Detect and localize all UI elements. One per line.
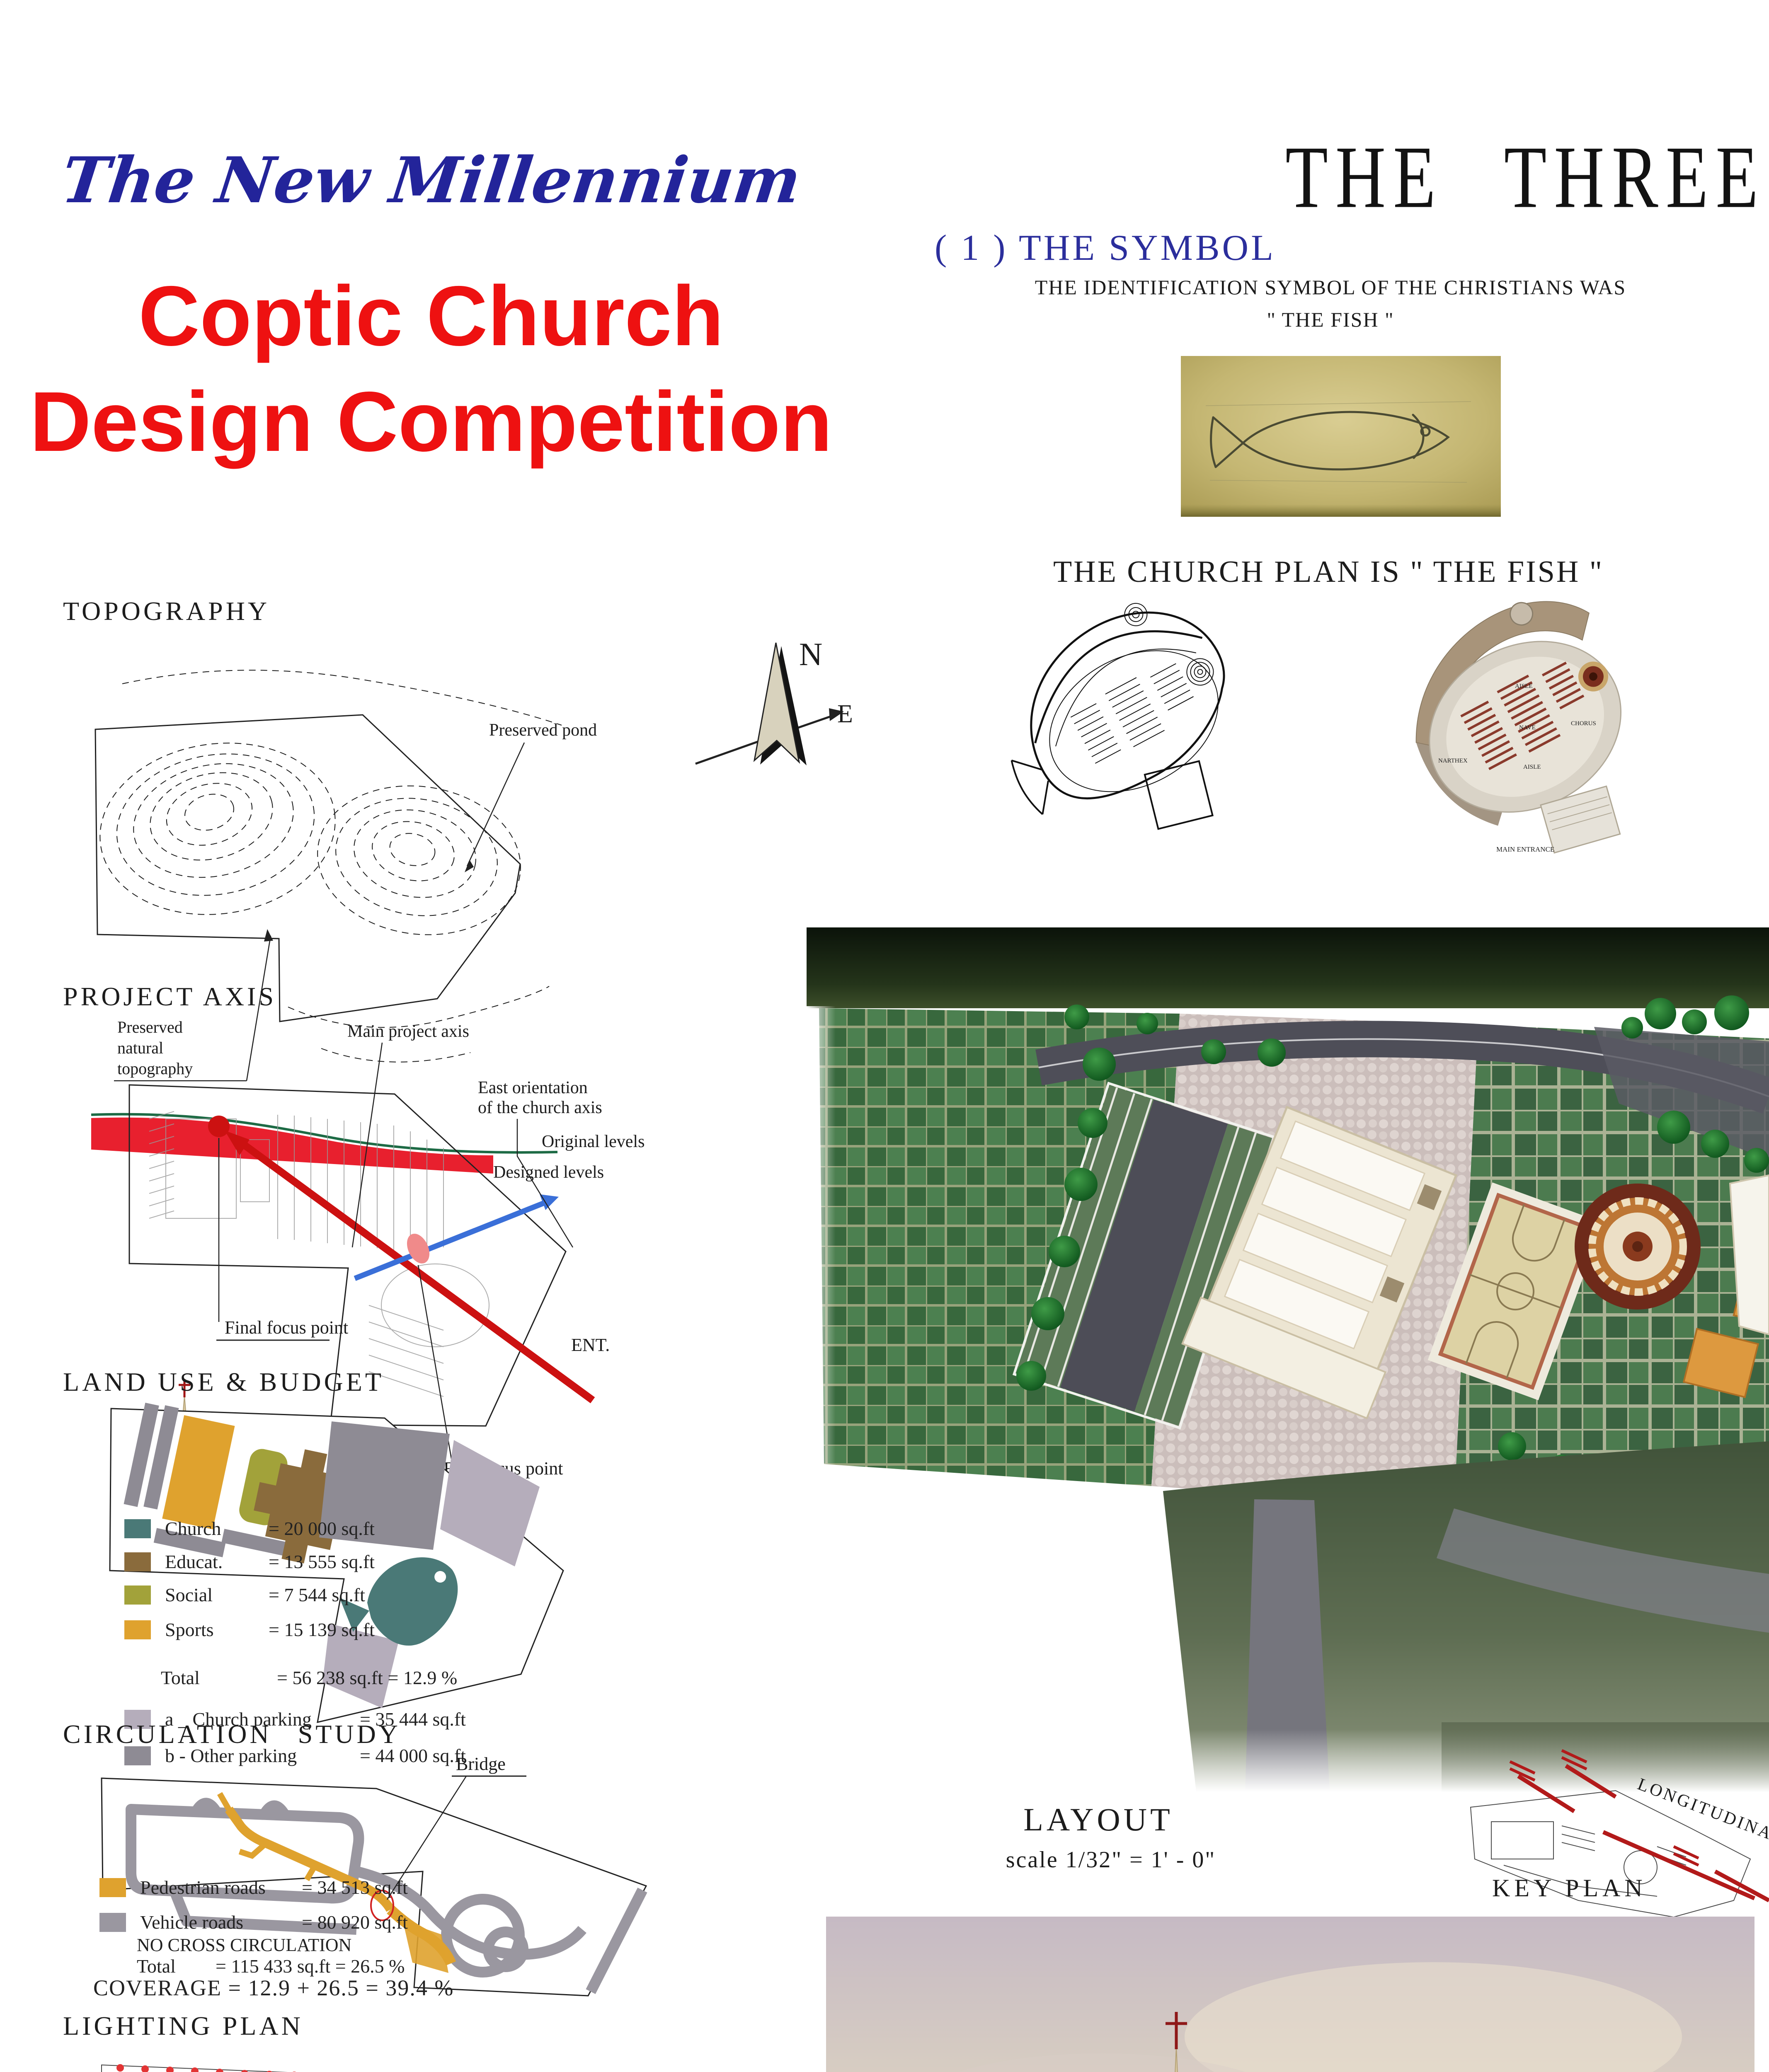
north-grass-band <box>807 927 1769 1008</box>
fish-plan-rendered: NARTHEX AISLE NAVE AISLE CHORUS MAIN ENT… <box>1395 578 1654 868</box>
plan-label-narthex: NARTHEX <box>1438 758 1468 764</box>
plan-label-aisle-left: AISLE <box>1515 683 1533 690</box>
mosaic-plaza <box>1575 1184 1701 1310</box>
topography-heading: TOPOGRAPHY <box>63 596 270 627</box>
legend-row-pedestrian: Pedestrian roads = 34 513 sq.ft <box>99 1876 408 1898</box>
layout-scale: scale 1/32" = 1' - 0" <box>953 1847 1268 1873</box>
symbol-line1: THE IDENTIFICATION SYMBOL OF THE CHRISTI… <box>966 275 1695 299</box>
church-value: = 20 000 sq.ft <box>269 1518 375 1539</box>
social-swatch <box>124 1585 151 1605</box>
coverage-note: COVERAGE = 12.9 + 26.5 = 39.4 % <box>93 1975 454 2001</box>
educat-label: Educat. <box>165 1551 269 1573</box>
layout-caption: LAYOUT <box>991 1801 1206 1838</box>
legend-row-educat: Educat. = 13 555 sq.ft <box>124 1551 375 1573</box>
plan-label-aisle-right: AISLE <box>1523 764 1541 770</box>
total-label: Total <box>161 1667 277 1689</box>
church-label: Church <box>165 1518 269 1539</box>
lighting-map <box>91 2050 613 2072</box>
vehicle-swatch <box>99 1913 126 1932</box>
final-focus-dot <box>208 1116 230 1137</box>
sports-label: Sports <box>165 1619 269 1641</box>
longitudinal-section-render <box>812 1912 1769 2072</box>
circ-total-label: Total <box>137 1955 216 1977</box>
bridge-label: Bridge <box>456 1754 506 1774</box>
social-label: Social <box>165 1584 269 1606</box>
legend-row-church: Church = 20 000 sq.ft <box>124 1518 375 1539</box>
plan-label-chorus: CHORUS <box>1571 720 1596 727</box>
entrance-label: ENT. <box>571 1335 610 1355</box>
educat-swatch <box>124 1552 151 1571</box>
competition-poster: The New Millennium Coptic Church Design … <box>0 0 1769 2072</box>
pedestrian-value: = 34 513 sq.ft <box>302 1876 408 1898</box>
script-title: The New Millennium <box>58 143 805 217</box>
plan-label-nave: NAVE <box>1519 724 1536 731</box>
key-plan-label: KEY PLAN <box>1492 1874 1647 1903</box>
sports-swatch <box>124 1620 151 1639</box>
sports-value: = 15 139 sq.ft <box>269 1619 375 1641</box>
educat-value: = 13 555 sq.ft <box>269 1551 375 1573</box>
legend-row-total: Total = 56 238 sq.ft = 12.9 % <box>161 1667 457 1689</box>
main-axis-arrow <box>240 1142 593 1400</box>
fish-symbol-sketch <box>1181 356 1501 517</box>
symbol-line2: " THE FISH " <box>966 307 1695 332</box>
east-axis-label-1: East orientation <box>478 1078 588 1097</box>
east-axis-label-2: of the church axis <box>478 1098 602 1117</box>
vehicle-value: = 80 920 sq.ft <box>302 1911 408 1933</box>
legend-row-social: Social = 7 544 sq.ft <box>124 1584 365 1606</box>
final-focus-label: Final focus point <box>225 1317 348 1338</box>
total-value: = 56 238 sq.ft = 12.9 % <box>277 1667 457 1689</box>
fish-plan-line-drawing <box>1018 583 1258 869</box>
legend-row-vehicle: Vehicle roads = 80 920 sq.ft <box>99 1911 408 1933</box>
circ-total-value: = 115 433 sq.ft = 26.5 % <box>216 1955 405 1977</box>
main-title-line1: Coptic Church <box>25 274 837 358</box>
social-value: = 7 544 sq.ft <box>269 1584 365 1606</box>
no-cross-note: NO CROSS CIRCULATION <box>137 1934 351 1956</box>
compass-e-label: E <box>837 700 853 728</box>
site-layout-plan <box>807 927 1769 1792</box>
legend-row-circ-total: Total = 115 433 sq.ft = 26.5 % <box>137 1955 405 1977</box>
circulation-heading: CIRCULATION STUDY <box>63 1719 401 1750</box>
plan-label-main-entrance: MAIN ENTRANCE <box>1496 845 1554 853</box>
church-swatch <box>124 1519 151 1538</box>
compass-n-label: N <box>799 636 822 672</box>
project-axis-heading: PROJECT AXIS <box>63 981 276 1012</box>
pond-label: Preserved pond <box>489 721 597 740</box>
lighting-heading: LIGHTING PLAN <box>63 2011 303 2041</box>
series-title: THE THREE <box>1256 126 1766 229</box>
pedestrian-label: Pedestrian roads <box>140 1876 302 1898</box>
vehicle-label: Vehicle roads <box>140 1911 302 1933</box>
roads-lighting-dots <box>99 2064 572 2072</box>
compass-rose: N E <box>680 620 854 794</box>
symbol-heading: ( 1 ) THE SYMBOL <box>935 227 1276 269</box>
main-title-line2: Design Competition <box>25 379 837 464</box>
pedestrian-swatch <box>99 1878 126 1897</box>
legend-row-sports: Sports = 15 139 sq.ft <box>124 1619 375 1641</box>
main-axis-label: Main project axis <box>347 1022 469 1041</box>
